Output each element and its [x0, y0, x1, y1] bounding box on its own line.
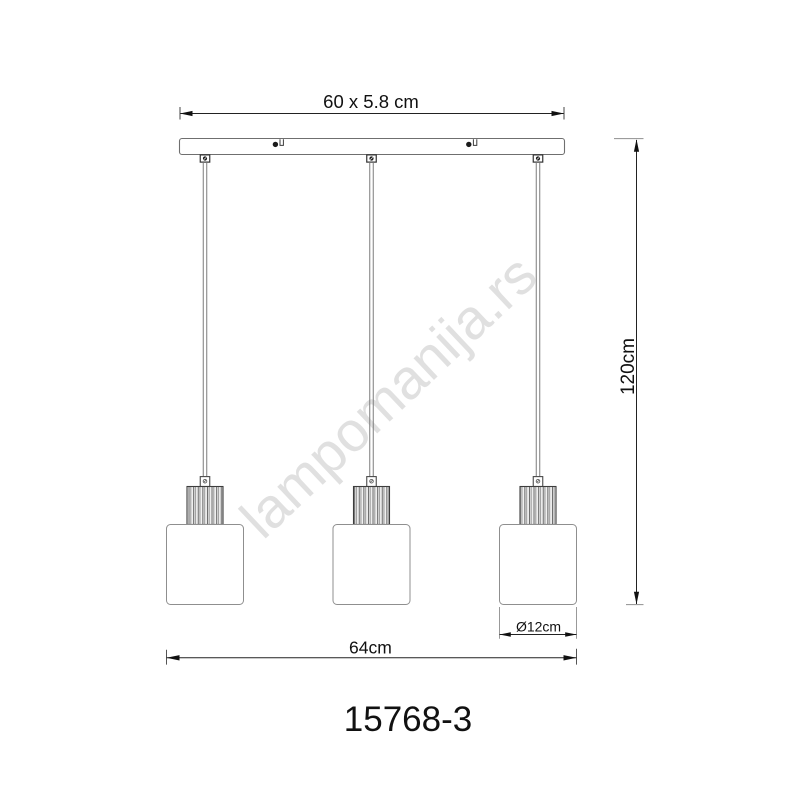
svg-text:60 x 5.8 cm: 60 x 5.8 cm [323, 91, 419, 112]
svg-text:120cm: 120cm [618, 338, 639, 395]
svg-text:Ø12cm: Ø12cm [516, 619, 561, 635]
svg-text:15768-3: 15768-3 [344, 700, 472, 739]
svg-text:64cm: 64cm [349, 638, 392, 658]
